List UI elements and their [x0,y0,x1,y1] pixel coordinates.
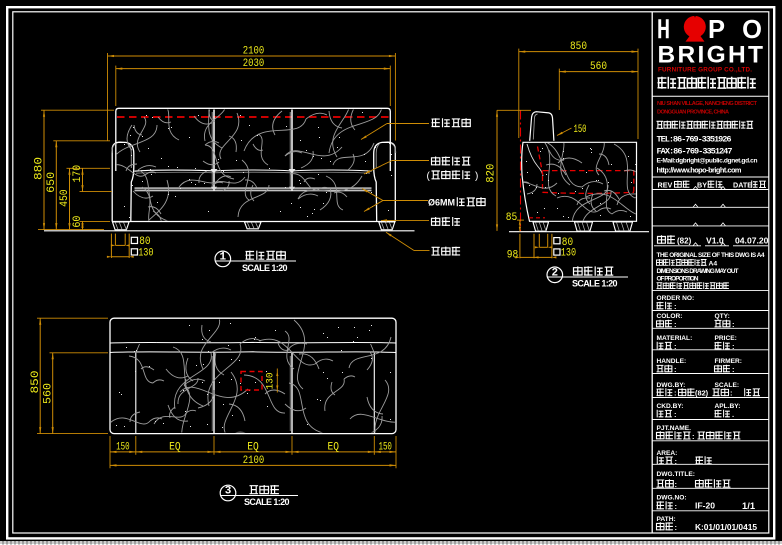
svg-text:A4: A4 [709,260,718,267]
svg-text:CKD.BY:: CKD.BY: [657,403,684,410]
svg-text::: : [675,480,678,489]
svg-text:PATH:: PATH: [657,516,676,523]
svg-text:850: 850 [30,371,42,394]
svg-text::: : [732,320,735,329]
svg-text:ORDER NO:: ORDER NO: [657,295,695,302]
svg-text:http://www.hopo-bright.com: http://www.hopo-bright.com [657,166,742,175]
svg-text:130: 130 [138,248,153,260]
svg-text:DONGGUAN PROVINCE, CHINA: DONGGUAN PROVINCE, CHINA [657,110,729,116]
svg-text:): ) [475,171,478,182]
svg-text:DWG.TITLE:: DWG.TITLE: [657,471,695,478]
svg-text:80: 80 [139,236,150,248]
svg-text:98: 98 [507,249,519,261]
svg-text:(82): (82) [677,237,692,246]
svg-text:DIMENSIONS DRAWING MAY OUT: DIMENSIONS DRAWING MAY OUT [657,268,739,275]
svg-text:EQ: EQ [169,442,181,454]
svg-text::: : [674,389,677,398]
svg-text::: : [675,502,678,511]
svg-text:650: 650 [46,172,58,193]
svg-text::: : [692,432,695,441]
svg-text:2100: 2100 [243,45,265,57]
svg-text:2030: 2030 [243,58,265,70]
svg-text:COLOR:: COLOR: [657,313,683,320]
svg-text:V1.0: V1.0 [706,236,724,246]
svg-text:REV: REV [658,180,673,189]
svg-text:IF-20: IF-20 [695,501,715,511]
svg-text:EQ: EQ [327,442,339,454]
svg-text:AREA:: AREA: [657,450,678,457]
svg-text:85: 85 [506,212,518,224]
svg-text::: : [674,410,677,419]
svg-text:OF PROPORTION: OF PROPORTION [657,275,699,282]
svg-text:880: 880 [34,157,46,180]
svg-text:THE ORIGINAL SIZE OF THIS DWG: THE ORIGINAL SIZE OF THIS DWG IS A4 [657,252,765,259]
svg-text:1: 1 [219,252,226,264]
svg-text:560: 560 [42,383,54,404]
svg-text:2: 2 [551,267,558,279]
svg-text:2100: 2100 [243,455,265,467]
svg-text:HANDLE:: HANDLE: [657,358,687,365]
svg-text:TEL:86-769-3351926: TEL:86-769-3351926 [657,135,732,145]
svg-text:E-Mail:dgbright@public.dgnet.g: E-Mail:dgbright@public.dgnet.gd.cn [657,157,758,164]
svg-text::: : [732,365,735,374]
svg-text::: : [675,523,678,532]
svg-text:SCALE 1:20: SCALE 1:20 [572,279,618,289]
svg-text:130: 130 [265,373,277,390]
svg-text:SCALE 1:20: SCALE 1:20 [242,263,288,273]
svg-text:DWG.NO:: DWG.NO: [657,494,687,501]
svg-text:FAX:86-769-3351247: FAX:86-769-3351247 [657,147,733,157]
svg-text::: : [674,302,677,311]
svg-text:130: 130 [561,247,576,259]
svg-text:(82): (82) [695,389,709,398]
svg-text:850: 850 [570,41,587,53]
svg-text:170: 170 [72,165,84,183]
svg-text:150: 150 [574,124,587,136]
svg-text:SCALE:: SCALE: [715,382,740,389]
svg-text:450: 450 [59,189,71,207]
svg-text:APL.BY:: APL.BY: [715,403,741,410]
svg-text:.: . [732,410,734,419]
svg-text:EQ: EQ [247,442,259,454]
svg-text:BY: BY [697,180,707,189]
svg-text:QTY:: QTY: [715,313,730,320]
svg-text:K:01/01/01/0415: K:01/01/01/0415 [695,522,757,532]
svg-text:DWG.BY:: DWG.BY: [657,382,686,389]
svg-text:FURNITURE GROUP CO.,LTD.: FURNITURE GROUP CO.,LTD. [658,67,752,74]
svg-text:FIRMER:: FIRMER: [715,358,742,365]
svg-text:SCALE 1:20: SCALE 1:20 [244,497,290,507]
svg-text:BRIGHT: BRIGHT [658,42,764,69]
svg-text:60: 60 [72,216,84,228]
svg-text:Ø6MM: Ø6MM [428,197,455,207]
svg-text:04.07.20: 04.07.20 [735,236,769,246]
svg-text:1/1: 1/1 [742,500,755,511]
svg-text:PJT.NAME.: PJT.NAME. [657,425,692,432]
svg-text::: : [674,320,677,329]
svg-text:560: 560 [590,61,607,73]
svg-text:820: 820 [486,164,498,183]
svg-text::: : [730,389,733,398]
svg-text:NIU SHAN VILLAGE, NANCHENG DIS: NIU SHAN VILLAGE, NANCHENG DISTRICT [657,101,758,107]
svg-text:DATE: DATE [733,180,752,189]
svg-text::: : [674,365,677,374]
svg-text:150: 150 [378,442,392,454]
svg-text:150: 150 [116,442,130,454]
